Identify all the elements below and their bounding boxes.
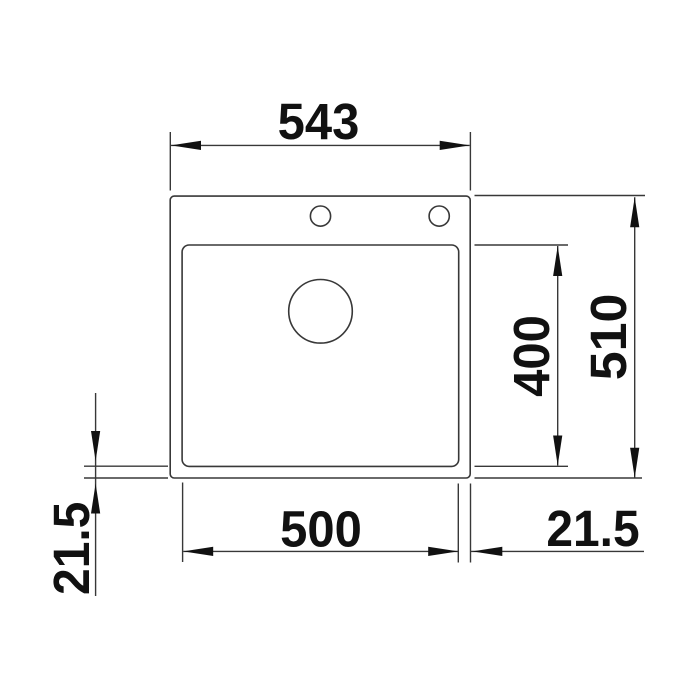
svg-text:500: 500 <box>280 500 362 557</box>
svg-text:543: 543 <box>278 93 360 150</box>
svg-text:510: 510 <box>580 294 637 381</box>
svg-text:400: 400 <box>503 315 560 397</box>
svg-text:21.5: 21.5 <box>44 502 101 595</box>
svg-text:21.5: 21.5 <box>546 501 639 558</box>
